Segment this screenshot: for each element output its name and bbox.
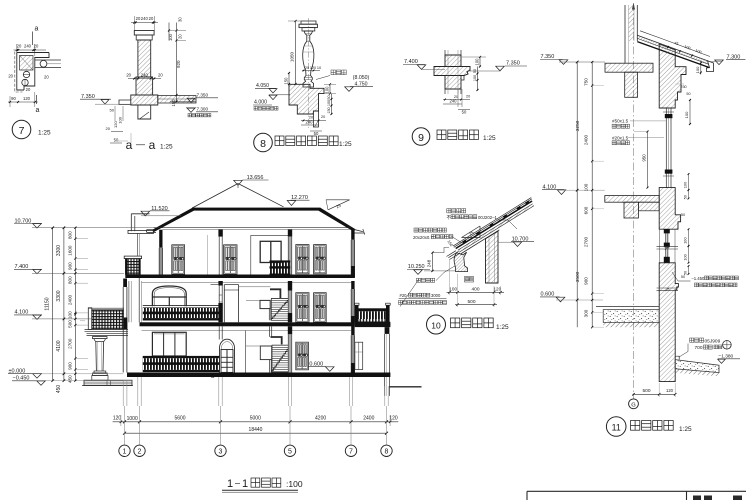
svg-text:5: 5: [288, 448, 292, 455]
svg-text:120: 120: [113, 121, 118, 128]
svg-text:450: 450: [56, 385, 62, 394]
svg-text:3250: 3250: [575, 120, 581, 131]
svg-text:2400: 2400: [363, 416, 374, 422]
svg-text:1600: 1600: [67, 245, 72, 256]
svg-text:2400: 2400: [67, 294, 72, 305]
svg-text:1: 1: [227, 478, 233, 490]
svg-text:1050: 1050: [290, 51, 295, 62]
svg-text:100: 100: [684, 111, 689, 118]
svg-text:4100: 4100: [56, 340, 62, 351]
svg-text:900: 900: [67, 362, 72, 370]
svg-text:750: 750: [584, 78, 589, 86]
svg-text:3300: 3300: [56, 290, 62, 301]
svg-text:11: 11: [612, 423, 621, 433]
svg-text:50: 50: [327, 95, 331, 99]
svg-text:5000: 5000: [250, 416, 261, 422]
svg-text:1:25: 1:25: [496, 324, 509, 331]
svg-text:20x20x0.7: 20x20x0.7: [413, 235, 433, 240]
svg-text:700: 700: [695, 345, 703, 351]
svg-text:20: 20: [26, 87, 31, 92]
svg-text:100: 100: [683, 253, 688, 260]
svg-text:90: 90: [11, 96, 16, 101]
svg-text:50: 50: [114, 138, 119, 143]
svg-text:5600: 5600: [174, 416, 185, 422]
svg-text:20: 20: [17, 44, 22, 49]
svg-text:900: 900: [67, 262, 72, 270]
svg-text:20: 20: [321, 115, 325, 119]
svg-text:120: 120: [666, 388, 674, 393]
svg-text:−1.450: −1.450: [691, 276, 705, 281]
svg-text:150: 150: [327, 107, 331, 113]
svg-text:20: 20: [466, 95, 470, 99]
svg-text:600: 600: [584, 206, 589, 214]
svg-text:920: 920: [176, 60, 181, 68]
svg-text:9: 9: [418, 132, 424, 144]
svg-text:—: —: [136, 139, 145, 149]
svg-text:20: 20: [106, 126, 111, 131]
svg-text:G: G: [631, 402, 636, 408]
svg-text:20: 20: [305, 66, 309, 70]
svg-text:3500: 3500: [575, 271, 581, 282]
svg-text:7: 7: [349, 448, 353, 455]
svg-text:a: a: [36, 107, 40, 114]
svg-text:4200: 4200: [315, 416, 326, 422]
svg-text:100: 100: [695, 66, 700, 73]
svg-text:500: 500: [642, 388, 650, 394]
svg-text:10: 10: [431, 321, 441, 331]
svg-text:8: 8: [385, 448, 389, 455]
svg-text:2700: 2700: [584, 236, 589, 247]
svg-text:100: 100: [168, 33, 173, 41]
svg-text:50: 50: [686, 92, 690, 96]
svg-text:120: 120: [113, 416, 122, 422]
svg-text:100: 100: [449, 286, 457, 291]
svg-text:30: 30: [178, 17, 183, 22]
svg-text:4.000: 4.000: [254, 100, 267, 106]
svg-text:7.400: 7.400: [404, 59, 418, 65]
svg-text:1: 1: [242, 478, 248, 490]
svg-text:1:25: 1:25: [679, 426, 692, 433]
svg-text:20: 20: [178, 34, 183, 39]
svg-text:150: 150: [284, 77, 289, 85]
svg-text:(8.050): (8.050): [353, 75, 370, 81]
svg-text:240: 240: [141, 16, 149, 21]
svg-text:20: 20: [44, 75, 49, 80]
svg-text:a: a: [35, 26, 39, 33]
svg-text:20: 20: [126, 73, 131, 78]
svg-text:100: 100: [683, 181, 688, 188]
svg-text:120: 120: [310, 66, 316, 70]
svg-text:100: 100: [683, 237, 688, 244]
svg-text:–: –: [235, 478, 240, 488]
svg-text:50: 50: [110, 108, 115, 113]
svg-text:240: 240: [24, 44, 32, 49]
svg-text:05J909: 05J909: [705, 338, 721, 344]
svg-text:50: 50: [681, 275, 685, 279]
svg-text:248: 248: [427, 259, 432, 267]
svg-text:8: 8: [260, 138, 266, 150]
svg-text:20: 20: [8, 74, 13, 79]
svg-text:#20x1.5: #20x1.5: [612, 135, 629, 140]
svg-text:400: 400: [471, 287, 479, 293]
svg-text:7.350: 7.350: [197, 93, 209, 98]
svg-text:800: 800: [67, 231, 72, 239]
svg-text:a: a: [149, 138, 156, 152]
svg-text:120: 120: [23, 96, 31, 101]
svg-text:1:25: 1:25: [160, 144, 173, 151]
svg-text:#20: #20: [400, 293, 408, 298]
svg-text:100: 100: [325, 86, 330, 94]
svg-text:800: 800: [67, 276, 72, 284]
svg-text:150: 150: [171, 99, 176, 107]
svg-text:2400: 2400: [584, 134, 589, 145]
svg-text:1: 1: [123, 448, 127, 455]
svg-text:120: 120: [389, 416, 398, 422]
svg-text:500: 500: [467, 299, 475, 305]
svg-text:500: 500: [67, 320, 72, 328]
svg-text:100: 100: [67, 311, 72, 319]
svg-text:7: 7: [19, 125, 25, 137]
svg-text:100: 100: [584, 183, 589, 191]
svg-text:50: 50: [681, 213, 685, 217]
svg-text:20: 20: [149, 16, 154, 21]
svg-text:50: 50: [473, 69, 477, 73]
svg-text:50: 50: [462, 110, 467, 115]
svg-text:950: 950: [641, 154, 646, 162]
svg-text:7.350: 7.350: [506, 61, 520, 67]
svg-text:2700: 2700: [67, 338, 72, 349]
svg-text:1:25: 1:25: [339, 141, 352, 148]
svg-text:3: 3: [219, 448, 223, 455]
svg-text:900: 900: [584, 277, 589, 285]
svg-text:18440: 18440: [249, 427, 263, 433]
svg-text:20: 20: [158, 73, 163, 78]
svg-text:20: 20: [34, 44, 39, 49]
svg-text:240: 240: [141, 73, 149, 78]
svg-text:10: 10: [317, 66, 321, 70]
svg-text:#50x1.5: #50x1.5: [612, 119, 629, 124]
svg-text:a: a: [126, 138, 133, 152]
svg-text:100: 100: [473, 75, 477, 81]
svg-text:3000: 3000: [431, 293, 441, 298]
svg-text:3300: 3300: [56, 245, 62, 256]
svg-text:1000: 1000: [127, 416, 138, 422]
svg-text:00J202–1: 00J202–1: [478, 215, 497, 220]
svg-text:7.300: 7.300: [197, 107, 209, 112]
svg-text:100: 100: [327, 100, 331, 106]
svg-text:50: 50: [314, 131, 319, 136]
svg-text:2: 2: [138, 448, 142, 455]
svg-text:100: 100: [118, 116, 123, 123]
svg-text:1:25: 1:25: [38, 130, 51, 137]
svg-text:300: 300: [584, 309, 589, 317]
svg-text:450: 450: [67, 375, 72, 383]
svg-text:1:25: 1:25: [483, 135, 496, 142]
svg-text::100: :100: [286, 479, 303, 489]
svg-text:11150: 11150: [45, 297, 51, 310]
svg-text:230: 230: [680, 85, 686, 89]
svg-text:100: 100: [475, 58, 480, 66]
